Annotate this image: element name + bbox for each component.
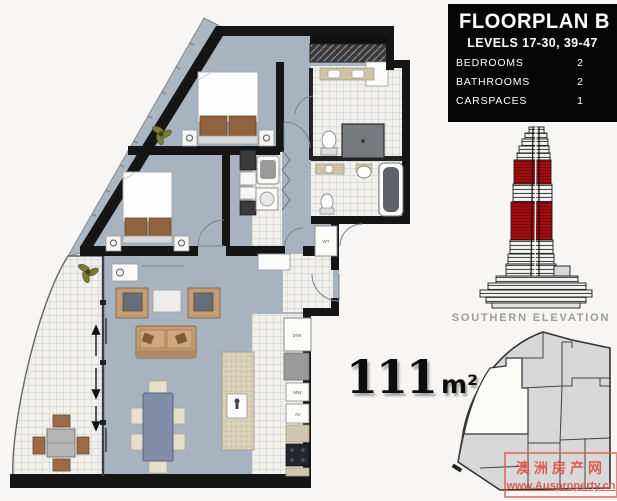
area-label: 111m²	[346, 350, 456, 404]
info-box: FLOORPLAN B LEVELS 17-30, 39-47 BEDROOMS…	[448, 4, 617, 122]
toilet	[320, 194, 334, 214]
bathtub	[379, 163, 403, 216]
armchair	[116, 288, 148, 318]
floorplan-page: D/W MW AV	[0, 0, 617, 501]
microwave-label: MW	[294, 390, 303, 395]
bedrooms-value: 2	[552, 57, 609, 69]
spec-row-bedrooms: BEDROOMS 2	[456, 57, 609, 69]
bedrooms-label: BEDROOMS	[456, 57, 552, 69]
wt-label: WT	[323, 239, 330, 244]
floorplan-drawing: D/W MW AV	[0, 0, 450, 501]
plate-entry-mark	[452, 464, 463, 473]
carspaces-label: CARSPACES	[456, 95, 552, 107]
spec-row-bathrooms: BATHROOMS 2	[456, 76, 609, 88]
spec-row-carspaces: CARSPACES 1	[456, 95, 609, 107]
bathrooms-label: BATHROOMS	[456, 76, 552, 88]
area-value: 111	[346, 350, 436, 404]
toilet	[321, 131, 337, 155]
floorplan-levels: LEVELS 17-30, 39-47	[456, 36, 609, 50]
tower-elevation-drawing	[460, 126, 617, 312]
watermark-url: www.Ausproperty.cn	[507, 480, 616, 492]
watermark: 澳洲房产网 www.Ausproperty.cn	[504, 452, 617, 498]
watermark-chinese: 澳洲房产网	[516, 458, 606, 478]
entry-closet	[258, 254, 290, 270]
kitchen-island	[222, 352, 254, 450]
av-label: AV	[295, 412, 301, 417]
elevation-caption: SOUTHERN ELEVATION	[448, 312, 614, 324]
highlighted-unit	[464, 358, 528, 434]
coffee-table	[153, 290, 181, 312]
entry-floor	[283, 254, 333, 312]
basin	[356, 164, 372, 178]
bathrooms-value: 2	[552, 76, 609, 88]
shower	[342, 124, 384, 158]
kitchen-appliances: D/W MW AV	[284, 318, 311, 476]
sofa	[136, 326, 196, 358]
dishwasher-label: D/W	[293, 333, 303, 338]
floorplan-title: FLOORPLAN B	[459, 10, 606, 34]
armchair	[188, 288, 220, 318]
carspaces-value: 1	[552, 95, 609, 107]
water-tank-cupboard: WT	[315, 226, 337, 256]
